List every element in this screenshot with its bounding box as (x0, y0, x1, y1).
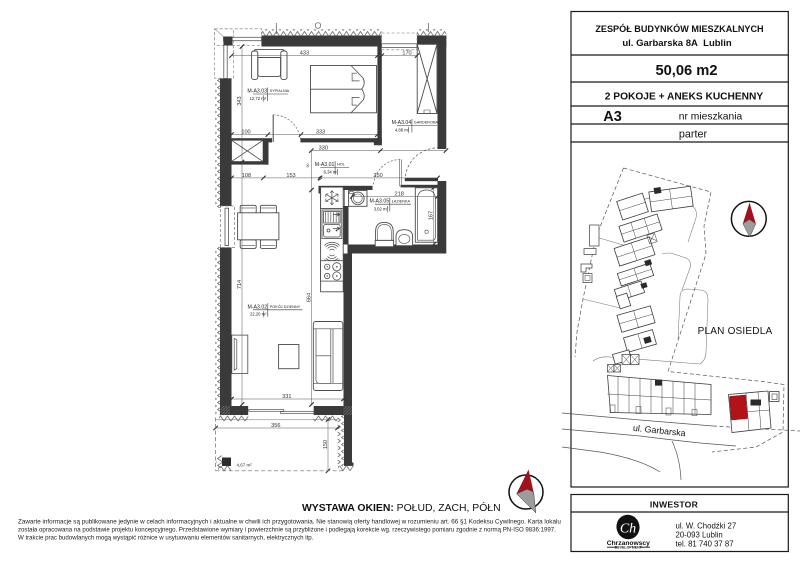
svg-text:100: 100 (241, 130, 250, 136)
svg-text:M-A3.04: M-A3.04 (392, 120, 412, 126)
svg-text:Ch: Ch (620, 522, 636, 537)
svg-text:356: 356 (271, 423, 280, 429)
svg-text:ŁAZIENKA: ŁAZIENKA (392, 199, 411, 203)
svg-text:parter: parter (679, 129, 708, 141)
svg-text:PLAN OSIEDLA: PLAN OSIEDLA (698, 326, 773, 337)
svg-text:218: 218 (395, 191, 404, 197)
svg-text:150: 150 (323, 440, 329, 449)
svg-text:M-A3.05: M-A3.05 (370, 199, 390, 205)
svg-text:SYPIALNIA: SYPIALNIA (270, 89, 290, 93)
svg-text:12,72 m²: 12,72 m² (250, 96, 267, 101)
svg-text:170: 170 (402, 51, 411, 57)
svg-text:22,20 m²: 22,20 m² (250, 312, 267, 317)
svg-text:3,02 m²: 3,02 m² (374, 207, 389, 212)
svg-text:330: 330 (319, 146, 328, 152)
svg-text:4,88 m²: 4,88 m² (395, 127, 410, 132)
svg-text:POKÓJ DZIENNY: POKÓJ DZIENNY (270, 304, 301, 309)
svg-text:333: 333 (316, 130, 325, 136)
svg-text:HOL: HOL (337, 163, 345, 167)
svg-text:343: 343 (237, 96, 243, 105)
svg-text:108: 108 (242, 173, 251, 179)
svg-text:GARDEROBA: GARDEROBA (414, 121, 439, 125)
svg-text:664: 664 (306, 293, 312, 302)
svg-text:4,67 m²: 4,67 m² (237, 463, 253, 468)
svg-text:została opracowana na podstawi: została opracowana na podstawie projektu… (18, 527, 556, 534)
svg-text:WYSTAWA OKIEN: POŁUD, ZACH, PÓ: WYSTAWA OKIEN: POŁUD, ZACH, PÓŁN (302, 501, 501, 514)
svg-text:M-A3.03: M-A3.03 (247, 89, 267, 95)
svg-text:153: 153 (286, 173, 295, 179)
svg-text:167: 167 (429, 211, 435, 220)
svg-text:50,06 m2: 50,06 m2 (655, 63, 717, 79)
svg-text:tel. 81 740 37 87: tel. 81 740 37 87 (676, 540, 734, 549)
svg-text:433: 433 (300, 51, 309, 57)
svg-text:ul. W. Chodźki 27: ul. W. Chodźki 27 (676, 521, 737, 530)
svg-text:DEVELOPMENT: DEVELOPMENT (615, 546, 643, 550)
svg-text:W trakcie prac budowlanych mog: W trakcie prac budowlanych mogą wystąpić… (18, 535, 314, 542)
svg-text:M-A3.01: M-A3.01 (315, 162, 335, 168)
svg-text:250: 250 (373, 173, 382, 179)
svg-text:20-093 Lublin: 20-093 Lublin (676, 530, 723, 539)
svg-text:M-A3.02: M-A3.02 (248, 304, 268, 310)
svg-text:INWESTOR: INWESTOR (650, 500, 699, 510)
svg-text:2 POKOJE + ANEKS KUCHENNY: 2 POKOJE + ANEKS KUCHENNY (605, 92, 764, 103)
svg-text:331: 331 (282, 394, 291, 400)
svg-text:Zawarte informacje są publikow: Zawarte informacje są publikowane jedyni… (18, 519, 561, 526)
svg-text:6,34 m²: 6,34 m² (324, 169, 339, 174)
svg-text:90: 90 (306, 164, 310, 168)
svg-text:ZESPÓŁ BUDYNKÓW MIESZKALNYCH: ZESPÓŁ BUDYNKÓW MIESZKALNYCH (595, 23, 763, 34)
svg-text:ul. Garbarska 8A Lublin: ul. Garbarska 8A Lublin (622, 38, 731, 49)
svg-text:nr mieszkania: nr mieszkania (679, 112, 743, 123)
svg-text:714: 714 (237, 280, 243, 289)
svg-text:A3: A3 (603, 109, 622, 125)
